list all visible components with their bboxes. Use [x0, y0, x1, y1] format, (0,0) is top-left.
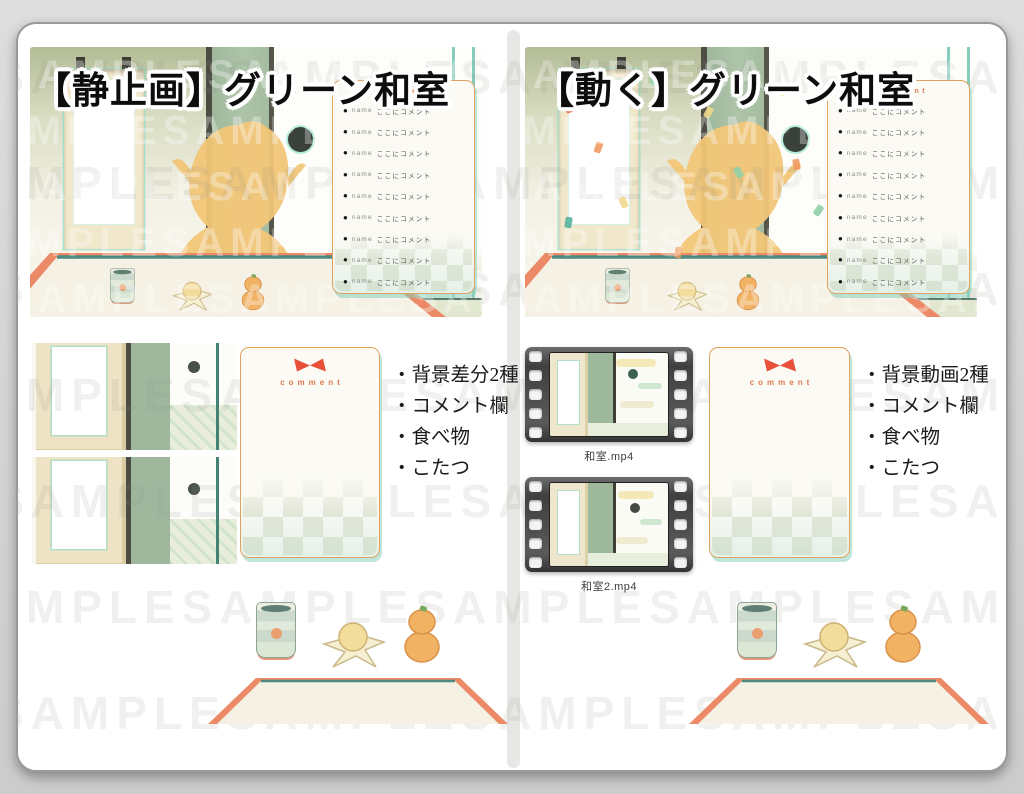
comment-row: ●nameここにコメント	[343, 186, 470, 207]
comment-placeholder-text: ここにコメント	[872, 213, 927, 223]
film-sprocket-holes	[529, 351, 544, 438]
background-variation-2	[32, 457, 237, 564]
commenter-name: name	[847, 214, 868, 221]
comment-row: ●nameここにコメント	[838, 250, 965, 271]
commenter-name: name	[352, 214, 373, 221]
hanging-scroll	[36, 457, 126, 564]
user-bullet-icon: ●	[343, 192, 348, 200]
feature-item: ・こたつ	[392, 453, 519, 484]
comment-row: ●nameここにコメント	[838, 143, 965, 164]
comment-placeholder-text: ここにコメント	[377, 255, 432, 265]
stacked-orange	[240, 273, 266, 311]
wall-pattern	[170, 519, 237, 564]
comment-placeholder-text: ここにコメント	[377, 191, 432, 201]
stacked-orange	[402, 604, 442, 664]
cloud-motif	[616, 359, 656, 367]
user-bullet-icon: ●	[343, 128, 348, 136]
cloud-motif	[620, 401, 654, 408]
cloud-motif	[640, 519, 662, 525]
wall-clock-icon	[188, 483, 200, 495]
commenter-name: name	[352, 236, 373, 243]
commenter-name: name	[847, 171, 868, 178]
teacup	[256, 602, 296, 658]
wall-clock-icon	[628, 369, 638, 379]
wall-pattern	[170, 405, 237, 450]
shoji-frame-line	[216, 343, 219, 450]
comment-placeholder-text: ここにコメント	[872, 234, 927, 244]
comment-placeholder-text: ここにコメント	[872, 255, 927, 265]
cloud-motif	[638, 383, 662, 389]
commenter-name: name	[847, 278, 868, 285]
film-sprocket-holes	[674, 481, 689, 568]
wrapped-sweet	[797, 618, 871, 668]
room-wall	[170, 457, 237, 564]
comment-placeholder-text: ここにコメント	[872, 127, 927, 137]
user-bullet-icon: ●	[838, 235, 843, 243]
comment-header: comment	[241, 378, 379, 387]
comment-placeholder-text: ここにコメント	[377, 170, 432, 180]
hanging-scroll	[36, 343, 126, 450]
wall-clock-icon	[630, 503, 640, 513]
commenter-name: name	[352, 257, 373, 264]
wrapped-sweet	[163, 279, 221, 311]
hanging-scroll	[550, 483, 588, 566]
comment-placeholder-text: ここにコメント	[377, 277, 432, 287]
still-panel-title: 【静止画】グリーン和室	[34, 60, 450, 114]
teacup	[110, 268, 135, 303]
comment-row: ●nameここにコメント	[343, 228, 470, 249]
wrapped-sweet	[658, 279, 716, 311]
commenter-name: name	[847, 129, 868, 136]
commenter-name: name	[847, 236, 868, 243]
room-pillar	[126, 343, 170, 450]
user-bullet-icon: ●	[343, 278, 348, 286]
wall-clock-icon	[288, 127, 313, 152]
video-filename: 和室2.mp4	[525, 578, 693, 594]
ribbon-icon	[292, 357, 328, 374]
comment-row: ●nameここにコメント	[343, 164, 470, 185]
background-variation-1	[32, 343, 237, 450]
comment-placeholder-text: ここにコメント	[377, 127, 432, 137]
user-bullet-icon: ●	[343, 256, 348, 264]
user-bullet-icon: ●	[343, 214, 348, 222]
comment-row: ●nameここにコメント	[838, 207, 965, 228]
feature-item: ・背景動画2種	[862, 360, 989, 391]
animated-panel-title: 【動く】グリーン和室	[537, 60, 915, 114]
feature-item: ・コメント欄	[862, 391, 989, 422]
comment-row: ●nameここにコメント	[343, 121, 470, 142]
commenter-name: name	[847, 150, 868, 157]
commenter-name: name	[847, 257, 868, 264]
tatami-floor	[588, 423, 668, 436]
user-bullet-icon: ●	[838, 214, 843, 222]
comment-row: ●nameここにコメント	[838, 271, 965, 292]
user-bullet-icon: ●	[838, 128, 843, 136]
comment-row: ●nameここにコメント	[838, 164, 965, 185]
film-sprocket-holes	[674, 351, 689, 438]
comment-panel-product: comment	[240, 347, 380, 558]
comment-placeholder-text: ここにコメント	[872, 170, 927, 180]
wall-clock-icon	[188, 361, 200, 373]
film-frame	[549, 352, 669, 437]
film-frame	[549, 482, 669, 567]
teacup	[737, 602, 777, 658]
comment-row: ●nameここにコメント	[838, 186, 965, 207]
user-bullet-icon: ●	[343, 171, 348, 179]
hanging-scroll	[550, 353, 588, 436]
shoji-frame-line	[216, 457, 219, 564]
tatami-floor	[588, 553, 668, 566]
comment-row: ●nameここにコメント	[838, 228, 965, 249]
panel-checker-pattern	[243, 477, 377, 555]
panel-checker-pattern	[712, 477, 847, 555]
kotatsu-table	[689, 678, 989, 724]
comment-placeholder-text: ここにコメント	[377, 213, 432, 223]
user-bullet-icon: ●	[838, 149, 843, 157]
wall-clock-icon	[783, 127, 808, 152]
comment-placeholder-text: ここにコメント	[872, 277, 927, 287]
comment-row: ●nameここにコメント	[343, 207, 470, 228]
comment-placeholder-text: ここにコメント	[872, 191, 927, 201]
wrapped-sweet	[316, 618, 390, 668]
comment-row: ●nameここにコメント	[343, 143, 470, 164]
commenter-name: name	[352, 150, 373, 157]
comment-placeholder-text: ここにコメント	[377, 148, 432, 158]
comment-panel-product: comment	[709, 347, 850, 558]
room-pillar	[126, 457, 170, 564]
commenter-name: name	[847, 193, 868, 200]
user-bullet-icon: ●	[838, 278, 843, 286]
video-preview-2	[525, 477, 693, 572]
user-bullet-icon: ●	[838, 192, 843, 200]
feature-list: ・背景動画2種 ・コメント欄 ・食べ物 ・こたつ	[862, 360, 989, 484]
video-filename: 和室.mp4	[525, 448, 693, 464]
comment-placeholder-text: ここにコメント	[377, 234, 432, 244]
cloud-motif	[618, 491, 654, 499]
comment-row: ●nameここにコメント	[343, 250, 470, 271]
feature-item: ・こたつ	[862, 453, 989, 484]
comment-rows: ●nameここにコメント●nameここにコメント●nameここにコメント●nam…	[838, 100, 965, 287]
product-sheet: SAMPLESAMPLESAMPLESAMPLESAMPLESAMPLESAMP…	[16, 22, 1008, 772]
user-bullet-icon: ●	[838, 256, 843, 264]
comment-row: ●nameここにコメント	[838, 121, 965, 142]
commenter-name: name	[352, 278, 373, 285]
video-preview-1	[525, 347, 693, 442]
cloud-motif	[616, 537, 648, 544]
comment-rows: ●nameここにコメント●nameここにコメント●nameここにコメント●nam…	[343, 100, 470, 287]
stacked-orange	[735, 273, 761, 311]
commenter-name: name	[352, 129, 373, 136]
feature-item: ・コメント欄	[392, 391, 519, 422]
scroll-paper	[52, 347, 106, 435]
comment-row: ●nameここにコメント	[343, 271, 470, 292]
commenter-name: name	[352, 193, 373, 200]
teacup	[605, 268, 630, 303]
feature-item: ・背景差分2種	[392, 360, 519, 391]
stacked-orange	[883, 604, 923, 664]
feature-item: ・食べ物	[392, 422, 519, 453]
user-bullet-icon: ●	[343, 149, 348, 157]
comment-placeholder-text: ここにコメント	[872, 148, 927, 158]
kotatsu-table	[208, 678, 508, 724]
commenter-name: name	[352, 171, 373, 178]
feature-list: ・背景差分2種 ・コメント欄 ・食べ物 ・こたつ	[392, 360, 519, 484]
room-wall	[170, 343, 237, 450]
user-bullet-icon: ●	[838, 171, 843, 179]
user-bullet-icon: ●	[343, 235, 348, 243]
scroll-paper	[52, 461, 106, 549]
ribbon-icon	[762, 357, 798, 374]
film-sprocket-holes	[529, 481, 544, 568]
comment-header: comment	[710, 378, 849, 387]
feature-item: ・食べ物	[862, 422, 989, 453]
